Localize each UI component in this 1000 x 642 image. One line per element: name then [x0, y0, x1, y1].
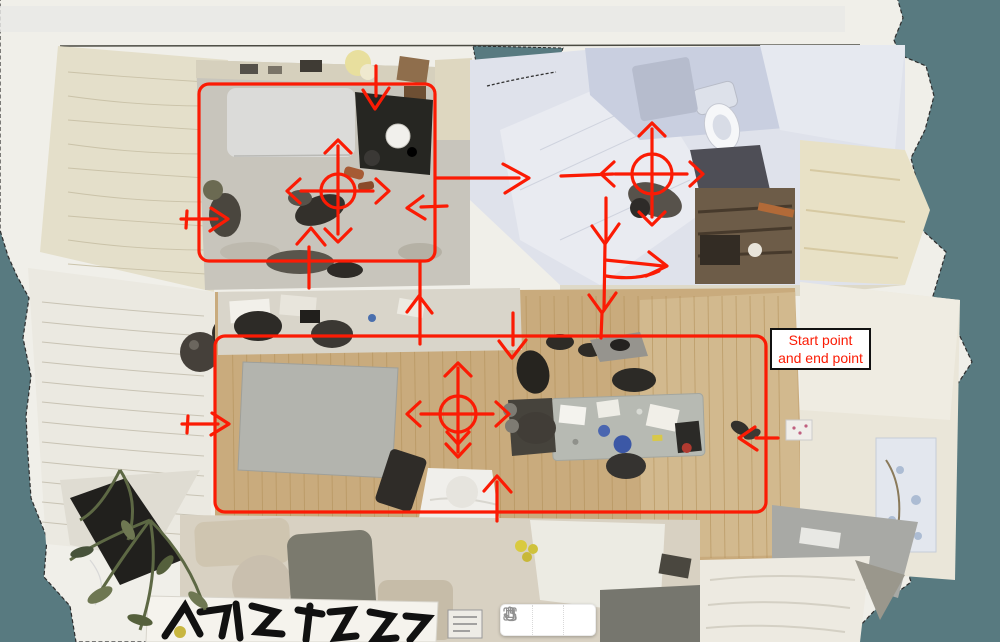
bottom-right-bed: [700, 556, 905, 642]
viewer-toolbar: [500, 604, 596, 636]
label-line-1: Start point: [789, 331, 853, 349]
label-line-2: and end point: [778, 349, 863, 367]
scene-viewport: Start point and end point: [0, 0, 1000, 642]
dining-table: [551, 393, 705, 460]
pan-button[interactable]: [532, 605, 564, 635]
select-button[interactable]: [563, 605, 595, 635]
start-end-label: Start point and end point: [770, 328, 871, 370]
pointer-hand-icon: [501, 605, 519, 623]
scan-top-view[interactable]: [0, 0, 1000, 642]
